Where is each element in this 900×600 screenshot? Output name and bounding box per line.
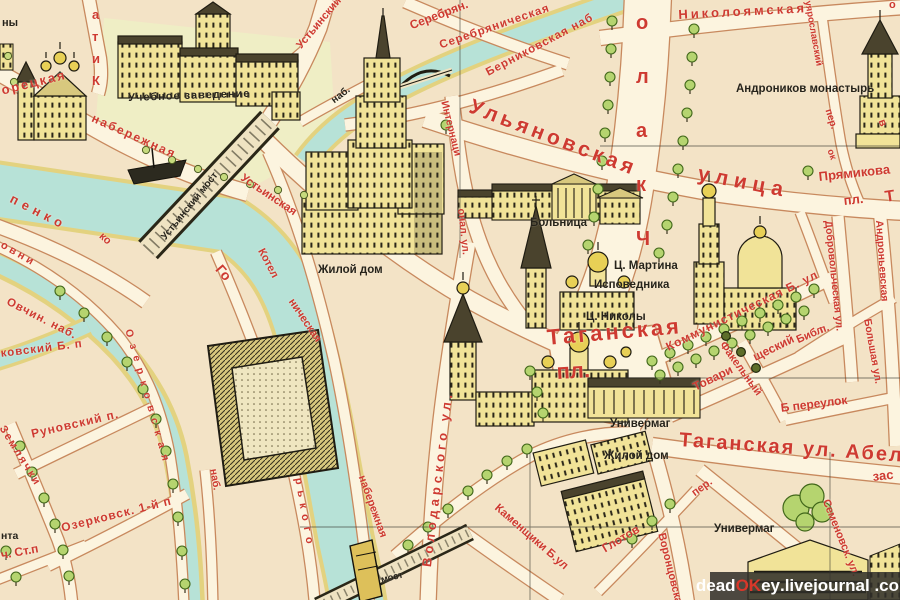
fir-icon [722, 332, 731, 341]
bush-icon [168, 156, 175, 163]
bush-icon [194, 165, 201, 172]
watermark-text: ey [761, 576, 780, 596]
bush-icon [300, 191, 307, 198]
bush-icon [142, 146, 149, 153]
map-artwork [0, 0, 900, 600]
watermark-text: dead [696, 576, 736, 596]
fir-icon [752, 364, 761, 373]
bush-icon [246, 180, 253, 187]
watermark-text: .com [870, 576, 900, 596]
bush-icon [220, 173, 227, 180]
bush-icon [10, 78, 17, 85]
watermark-text: OK [736, 576, 762, 596]
watermark: deadOKey.livejournal .com [710, 572, 900, 600]
bush-icon [4, 52, 11, 59]
watermark-text: .livejournal [780, 576, 870, 596]
fir-icon [737, 348, 746, 357]
bush-icon [274, 186, 281, 193]
map-canvas: ныУчебное заведениеорецкаянабережнаяа т … [0, 0, 900, 600]
building-univermag-1 [588, 378, 700, 418]
building-institution [208, 330, 338, 486]
